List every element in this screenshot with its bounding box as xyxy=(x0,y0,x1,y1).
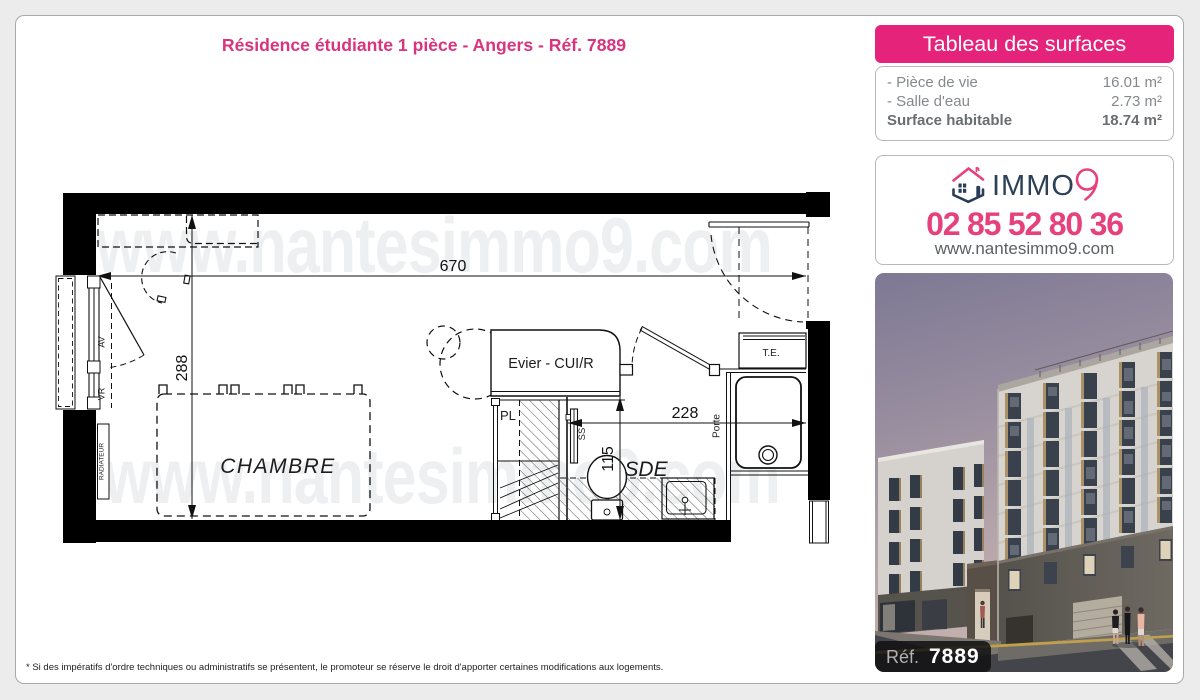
svg-text:IMMO: IMMO xyxy=(992,170,1075,202)
